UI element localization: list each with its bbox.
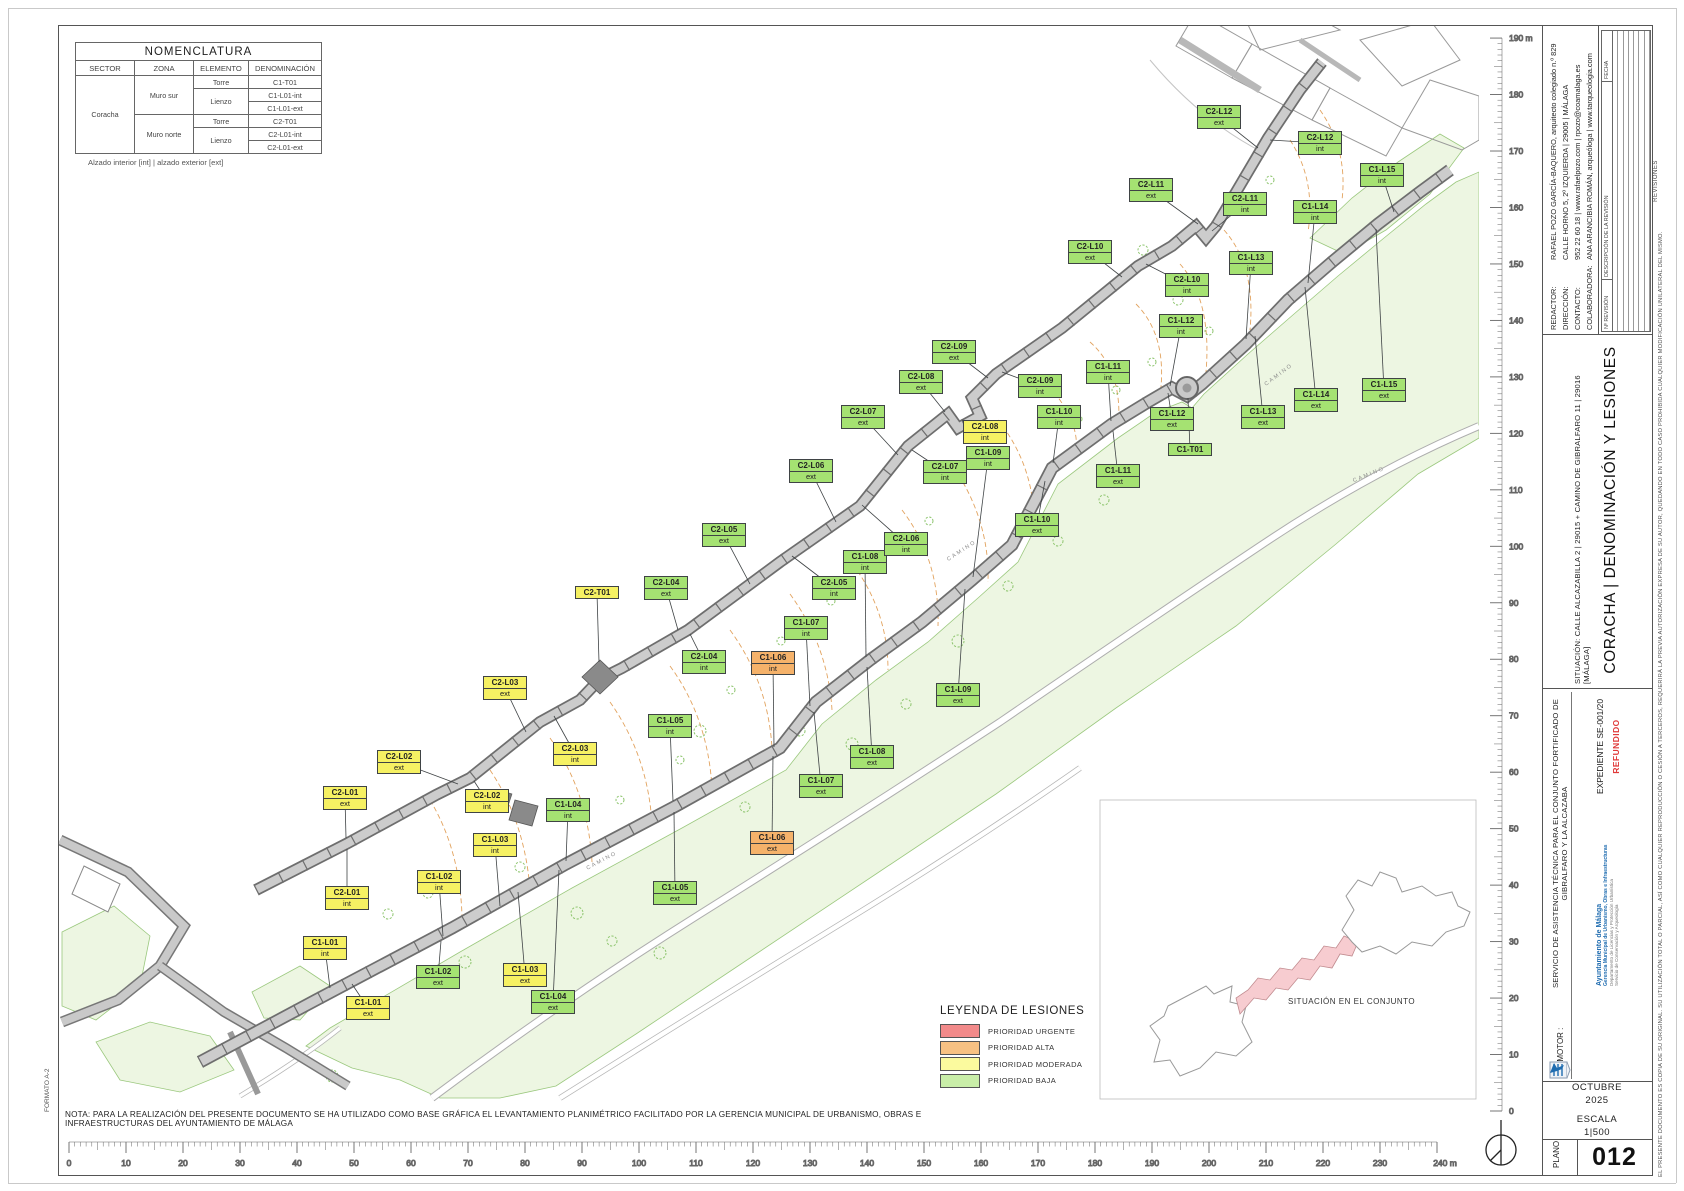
escala-label: ESCALA bbox=[1577, 1113, 1618, 1126]
redactor-row: REDACTOR:RAFAEL POZO GARCÍA-BAQUERO, arq… bbox=[1548, 30, 1560, 330]
trim-mark-right bbox=[1676, 8, 1677, 1183]
nomenclatura-caption: Alzado interior [int] | alzado exterior … bbox=[88, 158, 223, 167]
redactor-block: REDACTOR:RAFAEL POZO GARCÍA-BAQUERO, arq… bbox=[1547, 30, 1597, 330]
logo-arrow-icon bbox=[1549, 1061, 1565, 1075]
rev-header-desc: DESCRIPCIÓN DE LA REVISIÓN bbox=[1602, 81, 1612, 279]
date-scale-block: OCTUBRE 2025 ESCALA 1|500 bbox=[1542, 1081, 1652, 1139]
nomenclatura-table: NOMENCLATURA SECTOR ZONA ELEMENTO DENOMI… bbox=[75, 42, 322, 154]
plano-number: 012 bbox=[1577, 1139, 1652, 1175]
nomenclatura-title: NOMENCLATURA bbox=[76, 43, 322, 61]
title-block-main: SITUACIÓN: CALLE ALCAZABILLA 2 | 29015 +… bbox=[1549, 336, 1643, 684]
drawing-sheet: 0102030405060708090100110120130140150160… bbox=[0, 0, 1684, 1191]
legend-label: PRIORIDAD MODERADA bbox=[988, 1060, 1082, 1069]
year: 2025 bbox=[1585, 1094, 1608, 1107]
plano-label: PLANO bbox=[1552, 1141, 1561, 1168]
situacion-text: SITUACIÓN: CALLE ALCAZABILLA 2 | 29015 +… bbox=[1573, 336, 1591, 684]
redactor-row: CONTACTO:952 22 60 18 | www.rafaelpozo.c… bbox=[1572, 30, 1584, 330]
escala-value: 1|500 bbox=[1584, 1126, 1610, 1139]
legend-swatch bbox=[940, 1074, 980, 1088]
redactor-row: DIRECCIÓN:CALLE HORNO 5, 2º IZQUIERDA | … bbox=[1560, 30, 1572, 330]
legend-item: PRIORIDAD ALTA bbox=[940, 1040, 1084, 1057]
formato-label: FORMATO A-2 bbox=[44, 1069, 51, 1112]
ayuntamiento-logo: Ayuntamiento de Málaga Gerencia Municipa… bbox=[1596, 801, 1619, 991]
rev-header-num: Nº REVISIÓN bbox=[1602, 279, 1612, 331]
titleblock-border bbox=[1542, 25, 1543, 1175]
rev-header-fecha: FECHA bbox=[1602, 31, 1612, 81]
refundido-stamp: REFUNDIDO bbox=[1611, 692, 1621, 801]
month: OCTUBRE bbox=[1572, 1081, 1622, 1094]
legend-item: PRIORIDAD MODERADA bbox=[940, 1056, 1084, 1073]
legend-swatch bbox=[940, 1024, 980, 1038]
trim-mark-top bbox=[8, 8, 1676, 9]
legend-item: PRIORIDAD URGENTE bbox=[940, 1023, 1084, 1040]
servicio-text: SERVICIO DE ASISTENCIA TÉCNICA PARA EL C… bbox=[1551, 692, 1569, 995]
promotor-line3: Servicio de Conservación y Arqueología bbox=[1614, 845, 1619, 986]
legend-label: PRIORIDAD ALTA bbox=[988, 1043, 1055, 1052]
trim-mark-left bbox=[8, 8, 9, 1183]
sheet-title: CORACHA | DENOMINACIÓN Y LESIONES bbox=[1602, 346, 1620, 673]
promotor-name: Ayuntamiento de Málaga bbox=[1596, 845, 1603, 986]
disclaimer-text: EL PRESENTE DOCUMENTO ES COPIA DE SU ORI… bbox=[1658, 27, 1664, 1177]
servicio-block: PROMOTOR : SERVICIO DE ASISTENCIA TÉCNIC… bbox=[1549, 692, 1643, 1079]
legend-label: PRIORIDAD BAJA bbox=[988, 1076, 1056, 1085]
legend-item: PRIORIDAD BAJA bbox=[940, 1073, 1084, 1090]
note-text: NOTA: PARA LA REALIZACIÓN DEL PRESENTE D… bbox=[65, 1110, 965, 1128]
legend-label: PRIORIDAD URGENTE bbox=[988, 1027, 1075, 1036]
inset-situation-label: SITUACIÓN EN EL CONJUNTO bbox=[1288, 997, 1415, 1006]
legend-swatch bbox=[940, 1057, 980, 1071]
revisiones-block: Nº REVISIÓN DESCRIPCIÓN DE LA REVISIÓN F… bbox=[1601, 30, 1646, 332]
revision-empty-row bbox=[1645, 31, 1650, 331]
redactor-row: COLABORADORA:ANA ARANCIBIA ROMÁN, arqueó… bbox=[1584, 30, 1596, 330]
lesion-legend: LEYENDA DE LESIONES PRIORIDAD URGENTEPRI… bbox=[940, 1005, 1084, 1089]
legend-swatch bbox=[940, 1041, 980, 1055]
trim-mark-bottom bbox=[8, 1183, 1676, 1184]
expediente-text: EXPEDIENTE SE-001/20 bbox=[1595, 692, 1605, 801]
legend-title: LEYENDA DE LESIONES bbox=[940, 1005, 1084, 1017]
